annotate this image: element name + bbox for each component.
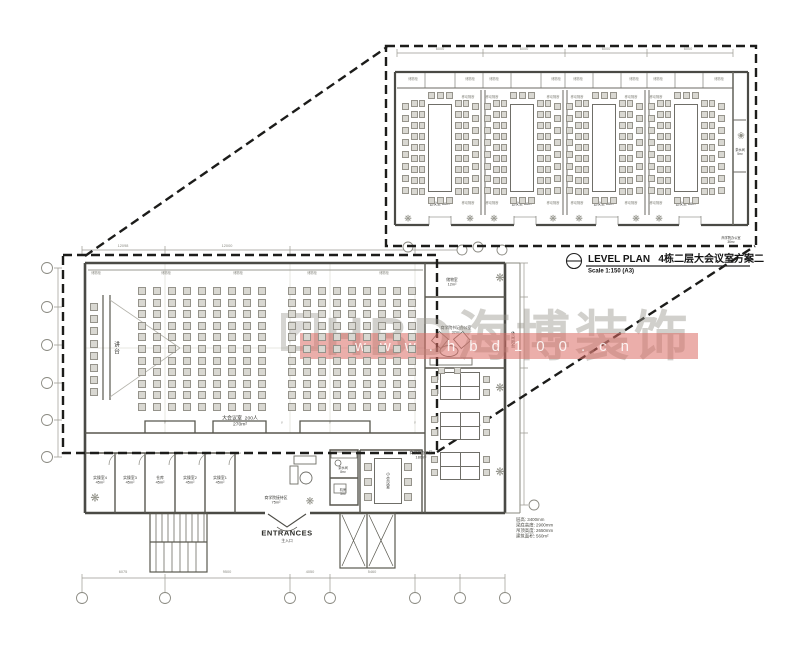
- seat: [636, 139, 643, 146]
- seat: [537, 188, 544, 195]
- seat: [537, 133, 544, 140]
- seat: [90, 340, 98, 348]
- seat: [501, 111, 508, 118]
- seat: [348, 345, 356, 353]
- seat: [665, 111, 672, 118]
- seat: [408, 403, 416, 411]
- cabinet-label: 储物柜: [714, 77, 724, 81]
- seat: [318, 403, 326, 411]
- seat: [333, 299, 341, 307]
- seat: [718, 115, 725, 122]
- seat: [138, 322, 146, 330]
- seat: [168, 391, 176, 399]
- seat: [404, 463, 412, 471]
- seat: [393, 310, 401, 318]
- building-spec-notes: 层高: 3400mm 梁底高度: 2900mm 吊顶高度: 2650mm 建筑面…: [516, 517, 553, 539]
- level-plan-name: 4栋二层大会议室方案二: [658, 254, 764, 265]
- dim-text: 5460: [368, 570, 377, 574]
- seat: [501, 133, 508, 140]
- scale-note: Scale 1:150 (A3): [588, 267, 634, 274]
- seat: [665, 155, 672, 162]
- seat: [258, 368, 266, 376]
- seat: [363, 391, 371, 399]
- seat: [363, 380, 371, 388]
- seat: [592, 197, 599, 204]
- cabinet-label: 储物柜: [161, 271, 171, 275]
- seat: [198, 310, 206, 318]
- seat: [408, 380, 416, 388]
- seat: [455, 144, 462, 151]
- seat: [243, 345, 251, 353]
- seat: [657, 111, 664, 118]
- partition-label: 移动隔断: [486, 201, 499, 205]
- seat: [484, 187, 491, 194]
- seat: [627, 133, 634, 140]
- seat: [213, 287, 221, 295]
- seat: [701, 166, 708, 173]
- seat: [545, 188, 552, 195]
- seat: [493, 188, 500, 195]
- callout-line-top: [85, 47, 387, 256]
- seat: [90, 388, 98, 396]
- seat: [303, 403, 311, 411]
- seat: [657, 100, 664, 107]
- seat: [393, 357, 401, 365]
- seat: [463, 144, 470, 151]
- seat: [183, 299, 191, 307]
- cabinet-label: 储物柜: [307, 271, 317, 275]
- column-marker: Y: [329, 421, 331, 425]
- plant-icon: ❋: [632, 214, 640, 225]
- seat: [701, 122, 708, 129]
- seat: [554, 115, 561, 122]
- seat: [228, 322, 236, 330]
- seat: [419, 155, 426, 162]
- seat: [674, 197, 681, 204]
- seat: [519, 197, 526, 204]
- seat: [183, 368, 191, 376]
- seat: [484, 127, 491, 134]
- seat: [718, 163, 725, 170]
- seat: [213, 345, 221, 353]
- seat: [463, 177, 470, 184]
- seat: [528, 197, 535, 204]
- seat: [318, 380, 326, 388]
- seat: [318, 310, 326, 318]
- seat: [583, 111, 590, 118]
- seat: [258, 380, 266, 388]
- seat: [303, 380, 311, 388]
- inset-corner-note: 商学院办公室36m²: [721, 236, 740, 244]
- seat: [472, 163, 479, 170]
- partition-label: 移动隔断: [547, 95, 560, 99]
- seat: [545, 133, 552, 140]
- seat: [554, 187, 561, 194]
- seat: [258, 345, 266, 353]
- seat: [566, 187, 573, 194]
- seat: [575, 188, 582, 195]
- seat: [583, 188, 590, 195]
- seat: [198, 287, 206, 295]
- dim-text: 6000: [602, 47, 611, 51]
- seat: [472, 175, 479, 182]
- seat: [411, 155, 418, 162]
- seat: [619, 177, 626, 184]
- plant-icon: ❋: [575, 214, 583, 225]
- seat: [454, 367, 461, 374]
- seat: [243, 287, 251, 295]
- seat: [243, 391, 251, 399]
- inset-room-table: [428, 104, 452, 192]
- seat: [493, 122, 500, 129]
- seat: [348, 391, 356, 399]
- seat: [431, 456, 438, 463]
- seat: [213, 380, 221, 388]
- seat: [718, 187, 725, 194]
- seat: [455, 111, 462, 118]
- seat: [183, 357, 191, 365]
- seat: [168, 380, 176, 388]
- seat: [501, 144, 508, 151]
- seat: [648, 163, 655, 170]
- seat: [455, 177, 462, 184]
- seat: [288, 391, 296, 399]
- seat: [683, 197, 690, 204]
- seat: [318, 322, 326, 330]
- inset-tea-room-label: 茶水间5m²: [735, 148, 745, 156]
- dim-text: 12098: [118, 244, 129, 248]
- seat: [404, 493, 412, 501]
- seat: [378, 357, 386, 365]
- seat: [228, 403, 236, 411]
- seat: [701, 155, 708, 162]
- seat: [288, 403, 296, 411]
- seat: [701, 177, 708, 184]
- seat: [627, 166, 634, 173]
- seat: [484, 175, 491, 182]
- seat: [566, 175, 573, 182]
- seat: [463, 166, 470, 173]
- seat: [258, 287, 266, 295]
- seat: [378, 299, 386, 307]
- seat: [393, 403, 401, 411]
- seat: [619, 166, 626, 173]
- seat: [333, 357, 341, 365]
- seat: [566, 103, 573, 110]
- seat: [318, 391, 326, 399]
- seat: [258, 333, 266, 341]
- seat: [501, 100, 508, 107]
- seat: [303, 310, 311, 318]
- seat: [288, 299, 296, 307]
- room-label: 实操室245m²: [183, 475, 197, 484]
- seat: [402, 187, 409, 194]
- seat: [303, 357, 311, 365]
- seat: [545, 166, 552, 173]
- seat: [437, 197, 444, 204]
- seat: [619, 144, 626, 151]
- seat: [575, 133, 582, 140]
- dim-text: 6000: [436, 47, 445, 51]
- seat: [537, 177, 544, 184]
- seat: [303, 345, 311, 353]
- seat: [138, 368, 146, 376]
- seat: [493, 133, 500, 140]
- seat: [364, 463, 372, 471]
- seat: [431, 376, 438, 383]
- seat: [318, 299, 326, 307]
- seat: [153, 310, 161, 318]
- seat: [718, 103, 725, 110]
- plant-icon: ❋: [655, 214, 663, 225]
- seat: [348, 403, 356, 411]
- seat: [554, 163, 561, 170]
- seat: [393, 345, 401, 353]
- seat: [709, 155, 716, 162]
- seat: [402, 115, 409, 122]
- seat: [583, 144, 590, 151]
- seat: [619, 111, 626, 118]
- seat: [709, 100, 716, 107]
- seat: [363, 357, 371, 365]
- seat: [627, 122, 634, 129]
- inset-room-table: [674, 104, 698, 192]
- seat: [168, 299, 176, 307]
- seat: [90, 352, 98, 360]
- seat: [333, 345, 341, 353]
- seat: [483, 376, 490, 383]
- seat: [408, 322, 416, 330]
- seat: [228, 380, 236, 388]
- seat: [528, 92, 535, 99]
- dim-text: 9500: [223, 570, 232, 574]
- seat: [419, 133, 426, 140]
- seat: [484, 103, 491, 110]
- seat: [288, 368, 296, 376]
- seat: [657, 166, 664, 173]
- office-desk-cluster: [440, 372, 480, 400]
- seat: [303, 333, 311, 341]
- seat: [213, 322, 221, 330]
- seat: [258, 299, 266, 307]
- seat: [493, 144, 500, 151]
- seat: [510, 197, 517, 204]
- seat: [575, 177, 582, 184]
- seat: [288, 333, 296, 341]
- seat: [472, 151, 479, 158]
- seat: [483, 429, 490, 436]
- seat: [446, 197, 453, 204]
- seat: [537, 122, 544, 129]
- seat: [153, 333, 161, 341]
- seat: [545, 122, 552, 129]
- seat: [243, 322, 251, 330]
- seat: [627, 177, 634, 184]
- seat: [665, 133, 672, 140]
- seat: [692, 197, 699, 204]
- cabinet-label: 储物柜: [573, 77, 583, 81]
- seat: [408, 333, 416, 341]
- partition-label: 移动隔断: [462, 95, 475, 99]
- partition-label: 移动隔断: [462, 201, 475, 205]
- seat: [378, 391, 386, 399]
- seat: [493, 166, 500, 173]
- seat: [554, 103, 561, 110]
- seat: [455, 166, 462, 173]
- cabinet-label: 储物柜: [91, 271, 101, 275]
- seat: [419, 122, 426, 129]
- plant-icon: ❋: [404, 214, 412, 225]
- seat: [501, 177, 508, 184]
- cabinet-label: 储物柜: [489, 77, 499, 81]
- seat: [575, 144, 582, 151]
- seat: [709, 177, 716, 184]
- seat: [583, 177, 590, 184]
- seat: [455, 122, 462, 129]
- partition-label: 移动隔断: [650, 201, 663, 205]
- seat: [709, 122, 716, 129]
- seat: [657, 144, 664, 151]
- seat: [183, 287, 191, 295]
- plant-icon: ❋: [306, 497, 314, 508]
- seat: [228, 357, 236, 365]
- seat: [333, 322, 341, 330]
- seat: [411, 133, 418, 140]
- seat: [431, 416, 438, 423]
- seat: [138, 310, 146, 318]
- seat: [348, 333, 356, 341]
- seat: [537, 111, 544, 118]
- seat: [402, 175, 409, 182]
- seat: [709, 166, 716, 173]
- machine-room-label: 机房5m²: [340, 488, 346, 496]
- seat: [636, 127, 643, 134]
- seat: [709, 111, 716, 118]
- seat: [138, 299, 146, 307]
- seat: [153, 380, 161, 388]
- partition-label: 移动隔断: [547, 201, 560, 205]
- seat: [665, 122, 672, 129]
- dim-text: 4050: [306, 570, 315, 574]
- seat: [463, 100, 470, 107]
- seat: [228, 299, 236, 307]
- seat: [718, 175, 725, 182]
- seat: [318, 287, 326, 295]
- seat: [493, 111, 500, 118]
- seat: [393, 299, 401, 307]
- seat: [90, 303, 98, 311]
- seat: [243, 403, 251, 411]
- seat: [619, 122, 626, 129]
- seat: [153, 287, 161, 295]
- seat: [519, 92, 526, 99]
- inset-room-table: [510, 104, 534, 192]
- seat: [472, 139, 479, 146]
- seat: [455, 100, 462, 107]
- seat: [378, 380, 386, 388]
- seat: [402, 139, 409, 146]
- cabinet-label: 储物柜: [233, 271, 243, 275]
- seat: [378, 310, 386, 318]
- seat: [348, 299, 356, 307]
- seat: [393, 368, 401, 376]
- seat: [168, 287, 176, 295]
- seat: [428, 197, 435, 204]
- watermark-band: www.hbd100.cn: [300, 333, 698, 359]
- seat: [648, 175, 655, 182]
- dim-text: 12000: [222, 244, 233, 248]
- seat: [153, 368, 161, 376]
- seat: [674, 92, 681, 99]
- cabinet-label: 储物柜: [408, 77, 418, 81]
- seat: [701, 133, 708, 140]
- room-label: 仓库45m²: [156, 475, 165, 484]
- small-meeting-label: 小会议室: [385, 472, 390, 489]
- seat: [483, 469, 490, 476]
- seat: [408, 310, 416, 318]
- seat: [183, 322, 191, 330]
- seat: [657, 133, 664, 140]
- seat: [483, 416, 490, 423]
- level-plan-heading: LEVEL PLAN: [588, 254, 650, 265]
- seat: [90, 315, 98, 323]
- level-plan-title: LEVEL PLAN 4栋二层大会议室方案二: [588, 250, 764, 265]
- cabinet-label: 储物柜: [551, 77, 561, 81]
- seat: [627, 111, 634, 118]
- seat: [333, 380, 341, 388]
- partition-label: 移动隔断: [625, 95, 638, 99]
- seat: [545, 155, 552, 162]
- seat: [411, 122, 418, 129]
- seat: [168, 333, 176, 341]
- seat: [419, 166, 426, 173]
- floorplan-drawing: LEVEL PLAN 4栋二层大会议室方案二 Scale 1:150 (A3) …: [0, 0, 800, 647]
- seat: [601, 92, 608, 99]
- seat: [288, 345, 296, 353]
- seat: [168, 368, 176, 376]
- seat: [333, 391, 341, 399]
- seat: [601, 197, 608, 204]
- seat: [665, 144, 672, 151]
- seat: [348, 287, 356, 295]
- seat: [419, 111, 426, 118]
- seat: [627, 188, 634, 195]
- seat: [183, 403, 191, 411]
- seat: [627, 100, 634, 107]
- seat: [378, 333, 386, 341]
- seat: [419, 100, 426, 107]
- inset-room-table: [592, 104, 616, 192]
- seat: [575, 122, 582, 129]
- seat: [709, 144, 716, 151]
- seat: [537, 155, 544, 162]
- seat: [402, 127, 409, 134]
- seat: [493, 177, 500, 184]
- seat: [636, 175, 643, 182]
- column-marker: Y: [414, 421, 416, 425]
- room-label: 实操室445m²: [93, 475, 107, 484]
- seat: [665, 166, 672, 173]
- seat: [288, 380, 296, 388]
- seat: [318, 333, 326, 341]
- elevator-shafts: [340, 513, 395, 568]
- seat: [411, 144, 418, 151]
- seat: [575, 111, 582, 118]
- seat: [566, 127, 573, 134]
- office-desk-cluster: [440, 452, 480, 480]
- seat: [243, 368, 251, 376]
- seat: [90, 364, 98, 372]
